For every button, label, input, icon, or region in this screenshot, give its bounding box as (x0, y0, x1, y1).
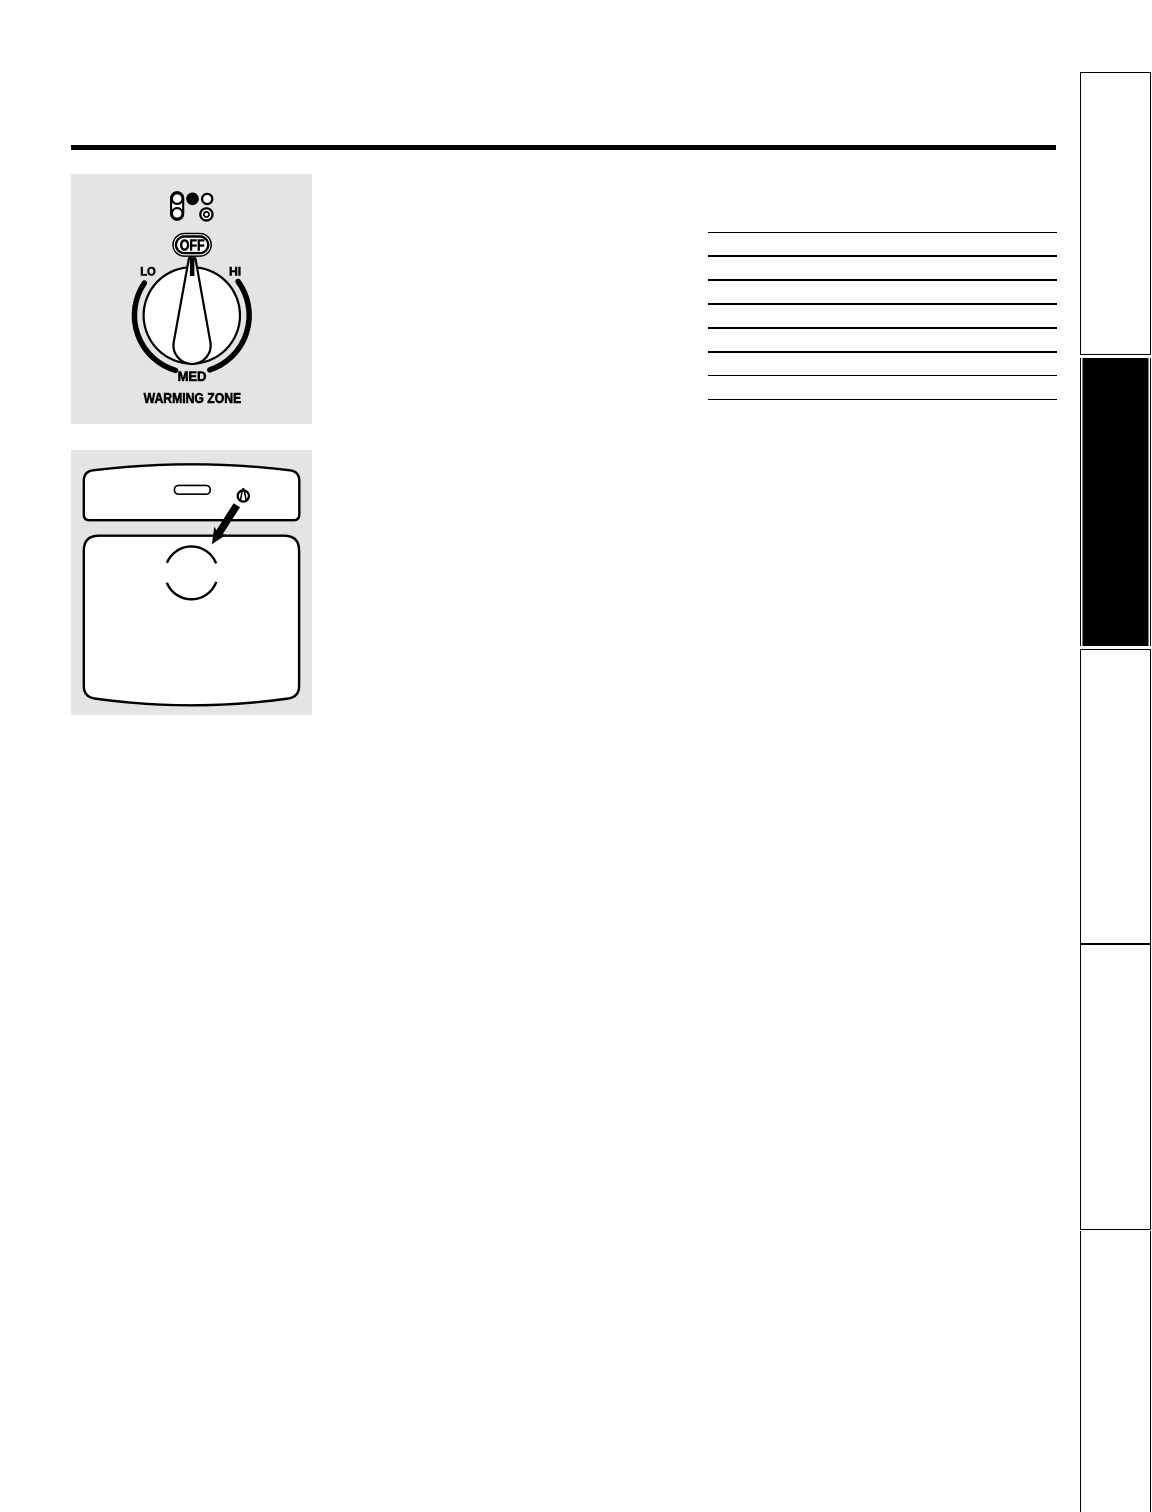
svg-text:HI: HI (229, 265, 241, 279)
svg-text:LO: LO (140, 265, 156, 279)
svg-text:WARMING ZONE: WARMING ZONE (144, 391, 242, 407)
svg-text:OFF: OFF (180, 238, 205, 255)
svg-text:MED: MED (178, 369, 207, 384)
